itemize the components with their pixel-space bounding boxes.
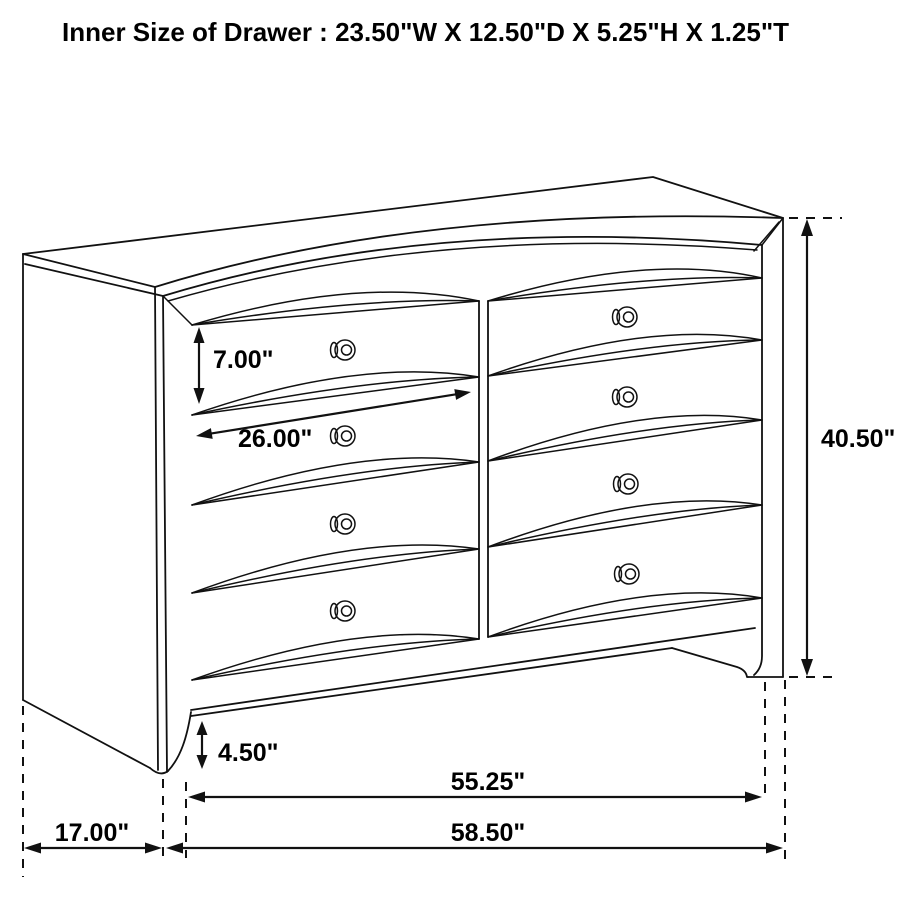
dim-overall-height: 40.50": [801, 219, 895, 676]
arrow-down-icon: [801, 659, 813, 676]
dresser-dimension-diagram: Inner Size of Drawer : 23.50"W X 12.50"D…: [0, 0, 900, 900]
dim-label-base-height: 4.50": [218, 739, 279, 767]
dim-front-width: 55.25": [188, 768, 762, 803]
dim-label-overall-height: 40.50": [821, 425, 895, 453]
dim-label-drawer-front-height: 7.00": [213, 346, 274, 374]
arrow-up-icon: [194, 327, 205, 343]
arrow-right-icon: [454, 389, 471, 400]
drawer-rows-right-column: [488, 269, 762, 637]
arrow-down-icon: [194, 388, 205, 404]
drawer-knobs: [331, 307, 640, 621]
arrow-right-icon: [145, 843, 162, 854]
dim-label-overall-width: 58.50": [451, 819, 525, 847]
arrow-up-icon: [801, 219, 813, 236]
knob-icon: [331, 340, 356, 360]
arrow-left-icon: [196, 428, 213, 439]
knob-icon: [331, 601, 356, 621]
dim-label-drawer-width: 26.00": [238, 425, 312, 453]
dim-overall-width: 58.50": [166, 819, 783, 854]
dresser-right-stile: [748, 218, 783, 677]
diagram-svg: Inner Size of Drawer : 23.50"W X 12.50"D…: [0, 0, 900, 900]
dresser-top: [23, 177, 783, 325]
arrow-up-icon: [197, 721, 208, 735]
extension-dashed-lines: [23, 218, 842, 877]
arrow-down-icon: [197, 755, 208, 769]
arrow-left-icon: [24, 843, 41, 854]
knob-icon: [331, 514, 356, 534]
knob-icon: [615, 564, 640, 584]
arrow-left-icon: [188, 792, 205, 803]
knob-icon: [614, 474, 639, 494]
dresser-center-divider: [479, 301, 488, 639]
dimension-annotations: 7.00" 26.00" 40.50" 4.50" 55: [23, 218, 895, 877]
diagram-title: Inner Size of Drawer : 23.50"W X 12.50"D…: [62, 17, 789, 47]
dresser-drawing: [23, 177, 783, 773]
arrow-right-icon: [766, 843, 783, 854]
knob-icon: [613, 387, 638, 407]
knob-icon: [331, 426, 356, 446]
dim-side-depth: 17.00": [24, 819, 162, 854]
arrow-right-icon: [745, 792, 762, 803]
dresser-left-side-panel: [23, 254, 168, 773]
dim-drawer-front-height: 7.00": [194, 327, 274, 404]
dim-label-front-width: 55.25": [451, 768, 525, 796]
dim-base-height: 4.50": [197, 721, 279, 769]
dim-label-side-depth: 17.00": [55, 819, 129, 847]
knob-icon: [613, 307, 638, 327]
arrow-left-icon: [166, 843, 183, 854]
